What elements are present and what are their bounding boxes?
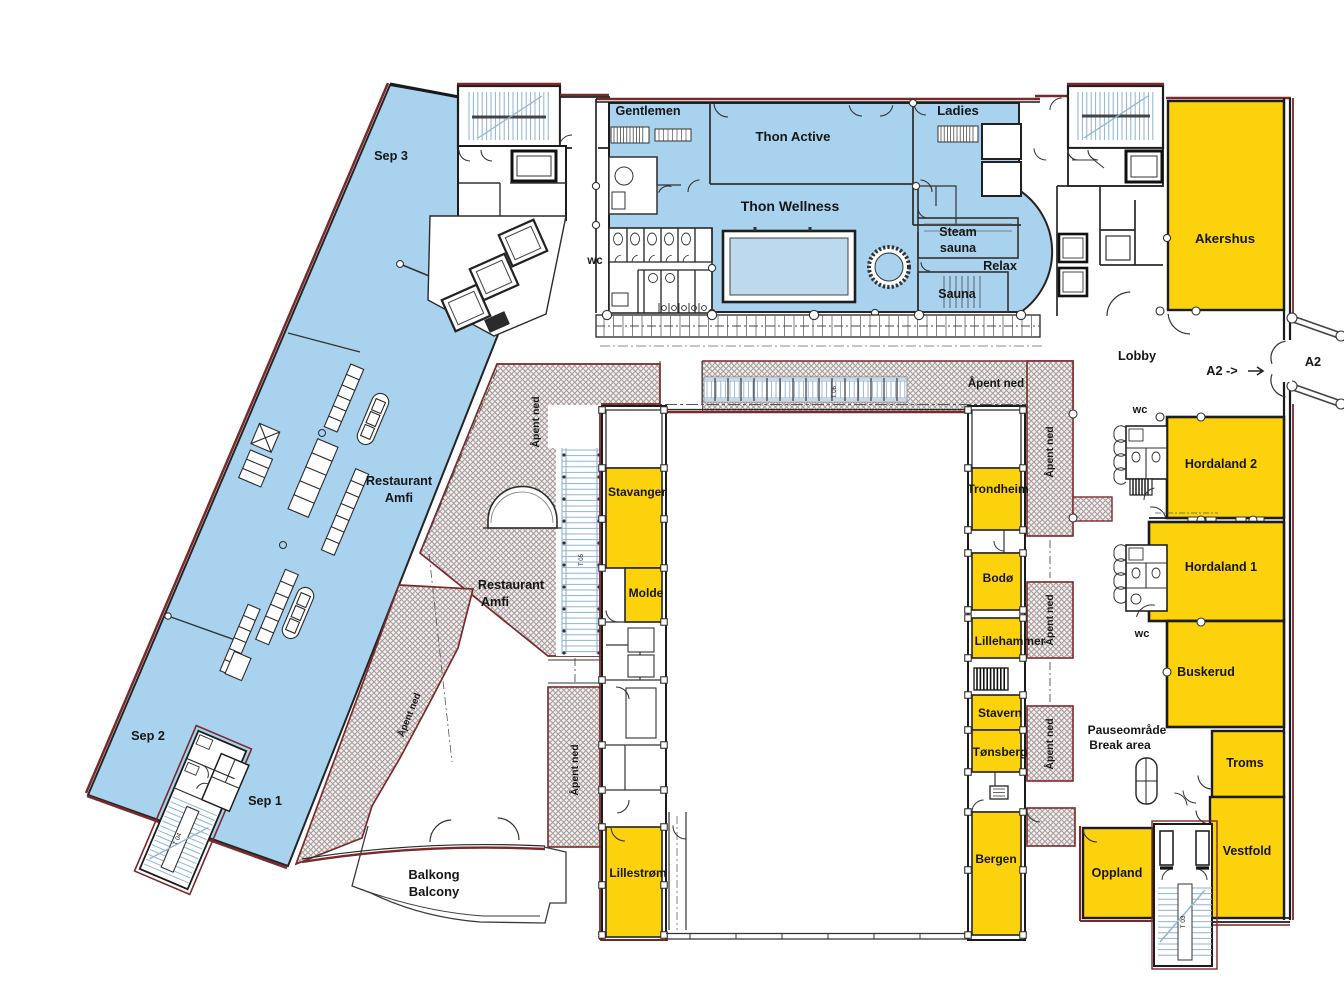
svg-text:Balkong: Balkong: [408, 867, 459, 882]
svg-text:Sauna: Sauna: [938, 287, 977, 301]
svg-text:Bodø: Bodø: [983, 571, 1014, 585]
svg-text:A2: A2: [1305, 355, 1321, 369]
svg-text:Sep 3: Sep 3: [374, 149, 408, 163]
svg-text:Restaurant: Restaurant: [366, 474, 433, 488]
svg-text:Troms: Troms: [1226, 756, 1264, 770]
svg-text:Restaurant: Restaurant: [478, 578, 545, 592]
svg-text:Sep 2: Sep 2: [131, 729, 165, 743]
svg-text:Åpent ned: Åpent ned: [1043, 426, 1056, 477]
svg-text:Steam: Steam: [939, 225, 977, 239]
svg-text:Relax: Relax: [983, 259, 1017, 273]
svg-text:Molde: Molde: [629, 586, 664, 600]
svg-text:Oppland: Oppland: [1092, 866, 1143, 880]
svg-text:Buskerud: Buskerud: [1177, 665, 1235, 679]
svg-text:Sep 1: Sep 1: [248, 794, 282, 808]
svg-text:Tønsberg: Tønsberg: [973, 745, 1028, 759]
svg-text:Åpent ned: Åpent ned: [568, 744, 581, 795]
svg-text:Vestfold: Vestfold: [1223, 844, 1272, 858]
svg-text:wc: wc: [586, 255, 603, 267]
svg-text:T 05: T 05: [579, 553, 585, 566]
svg-text:Balcony: Balcony: [409, 884, 460, 899]
svg-text:sauna: sauna: [940, 241, 977, 255]
svg-text:T 03: T 03: [1180, 915, 1187, 928]
svg-text:Pauseområde: Pauseområde: [1088, 723, 1167, 737]
svg-text:wc: wc: [1132, 404, 1148, 416]
svg-text:Akershus: Akershus: [1195, 231, 1255, 246]
svg-text:T 06: T 06: [832, 385, 838, 398]
svg-text:wc: wc: [1134, 628, 1150, 640]
svg-text:Åpent ned: Åpent ned: [1043, 718, 1056, 769]
svg-text:Trondheim: Trondheim: [967, 482, 1028, 496]
svg-text:Break area: Break area: [1089, 738, 1151, 752]
svg-text:Hordaland 2: Hordaland 2: [1185, 457, 1257, 471]
svg-text:Amfi: Amfi: [481, 595, 509, 609]
svg-text:Hordaland 1: Hordaland 1: [1185, 560, 1257, 574]
svg-text:Lillehammer: Lillehammer: [975, 634, 1046, 648]
svg-text:Stavern: Stavern: [978, 706, 1022, 720]
svg-text:Åpent ned: Åpent ned: [968, 377, 1024, 390]
svg-text:Åpent ned: Åpent ned: [529, 396, 542, 447]
svg-text:Amfi: Amfi: [385, 491, 413, 505]
svg-text:Lobby: Lobby: [1118, 349, 1156, 363]
svg-text:Thon Wellness: Thon Wellness: [741, 198, 840, 214]
svg-text:Bergen: Bergen: [975, 852, 1016, 866]
svg-text:Ladies: Ladies: [937, 103, 979, 118]
svg-text:A2 ->: A2 ->: [1206, 364, 1237, 378]
svg-text:Stavanger: Stavanger: [608, 485, 666, 499]
svg-text:Thon Active: Thon Active: [756, 129, 831, 144]
svg-text:Lillestrøm: Lillestrøm: [609, 866, 666, 880]
svg-text:Gentlemen: Gentlemen: [615, 104, 680, 118]
